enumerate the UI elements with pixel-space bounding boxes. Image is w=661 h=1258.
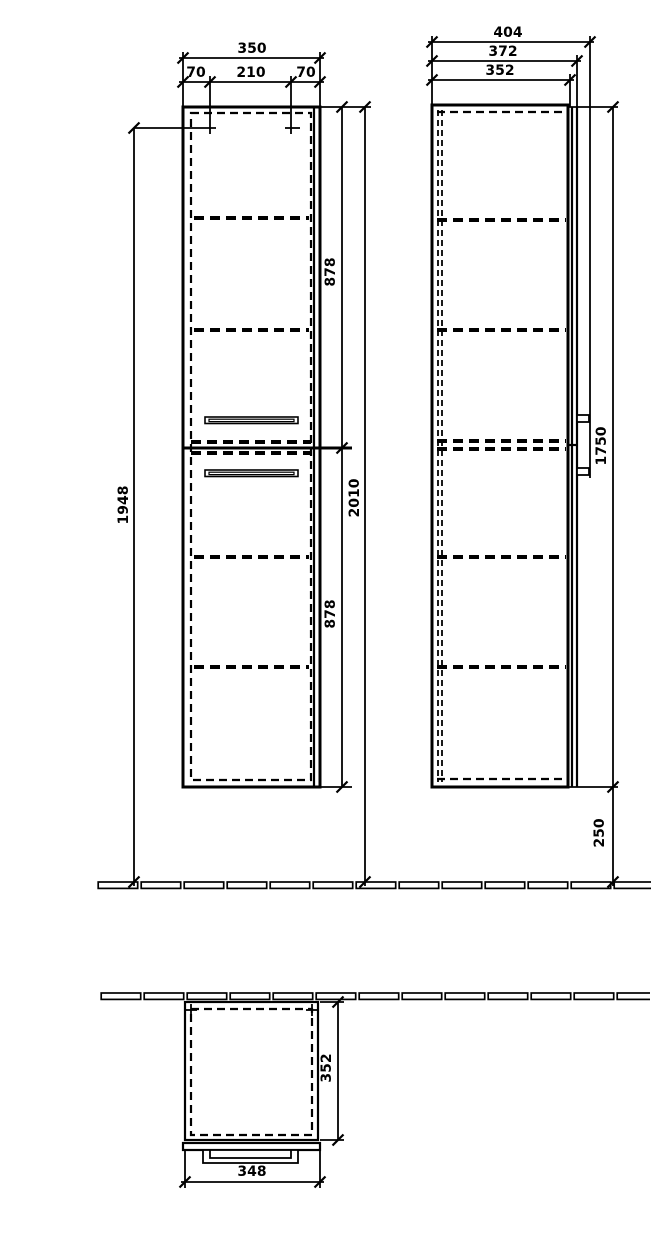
- dim-label-210: 210: [236, 65, 265, 81]
- dim-label-250: 250: [592, 818, 608, 847]
- dim-front-height-total: 2010: [347, 102, 371, 888]
- floor-hatch: [97, 881, 651, 890]
- dim-label-1948: 1948: [116, 486, 132, 525]
- plan-view: 352 348: [180, 997, 345, 1189]
- dim-label-70-left: 70: [186, 65, 206, 81]
- dim-side-depth-carcass: 352: [427, 63, 576, 86]
- dim-label-878-upper: 878: [323, 257, 339, 286]
- plan-handle: [203, 1150, 298, 1163]
- side-elevation-view: 404 372 352 1750 250: [427, 25, 619, 888]
- dim-side-carcass-height: 1750: [594, 102, 619, 793]
- wall-hatch: [100, 992, 650, 1001]
- dim-label-372: 372: [488, 44, 517, 60]
- plan-cabinet-body: [185, 1002, 318, 1140]
- plan-door-panel: [183, 1143, 320, 1150]
- front-handle-lower: [205, 470, 298, 477]
- side-handle-lower: [577, 468, 589, 475]
- plan-carcass-hidden-outline: [191, 1009, 312, 1135]
- dim-label-878-lower: 878: [323, 599, 339, 628]
- dim-plan-depth: 352: [319, 997, 344, 1146]
- dim-front-rail-height: 1948: [116, 123, 140, 888]
- plan-fixpoint-cross: [185, 1004, 197, 1016]
- dim-label-404: 404: [493, 25, 522, 41]
- dim-front-width-total: 350: [178, 41, 326, 64]
- dim-label-1750: 1750: [594, 426, 610, 465]
- dim-label-350: 350: [237, 41, 266, 57]
- dim-side-floor-clearance: 250: [592, 787, 619, 888]
- technical-drawing: 350 70 210 70 1948 878 878 2010: [0, 0, 661, 1258]
- side-cabinet-body: [432, 105, 568, 787]
- plan-fixpoint-cross: [306, 1004, 318, 1016]
- front-handle-upper: [205, 417, 298, 424]
- dim-label-2010: 2010: [347, 478, 363, 517]
- dim-label-70-right: 70: [296, 65, 316, 81]
- dim-label-352-plan: 352: [319, 1053, 335, 1082]
- dim-plan-width: 348: [180, 1164, 326, 1188]
- front-elevation-view: 350 70 210 70 1948 878 878 2010: [116, 41, 371, 888]
- dim-label-352-side: 352: [485, 63, 514, 79]
- dim-label-348: 348: [237, 1164, 266, 1180]
- side-handle-upper: [577, 415, 589, 422]
- dim-front-fixpoints: 70 210 70: [178, 65, 326, 88]
